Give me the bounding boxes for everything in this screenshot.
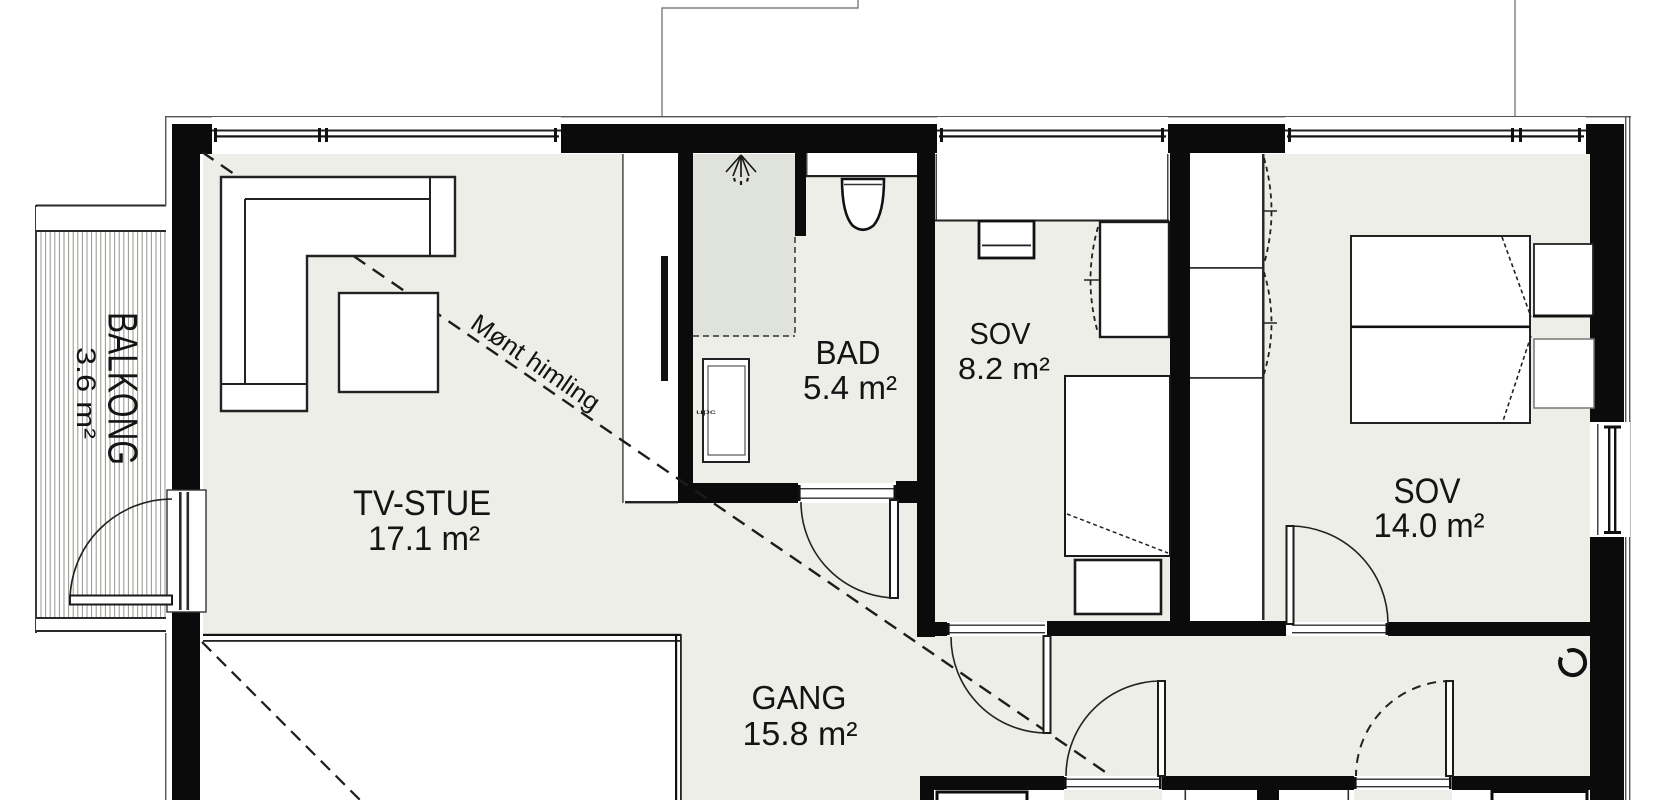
svg-text:upc: upc <box>696 409 717 416</box>
svg-text:GANG: GANG <box>752 679 847 716</box>
svg-text:SOV: SOV <box>1394 472 1462 511</box>
svg-text:8.2 m²: 8.2 m² <box>958 351 1050 386</box>
svg-text:15.8 m²: 15.8 m² <box>743 715 858 752</box>
svg-text:5.4 m²: 5.4 m² <box>803 369 897 406</box>
svg-text:TV-STUE: TV-STUE <box>353 484 491 523</box>
svg-text:14.0 m²: 14.0 m² <box>1374 507 1485 545</box>
svg-text:BAD: BAD <box>816 334 881 371</box>
svg-text:3.6 m²: 3.6 m² <box>71 347 101 439</box>
svg-text:SOV: SOV <box>970 316 1031 351</box>
svg-text:17.1 m²: 17.1 m² <box>368 520 480 558</box>
svg-text:BALKONG: BALKONG <box>100 312 147 465</box>
